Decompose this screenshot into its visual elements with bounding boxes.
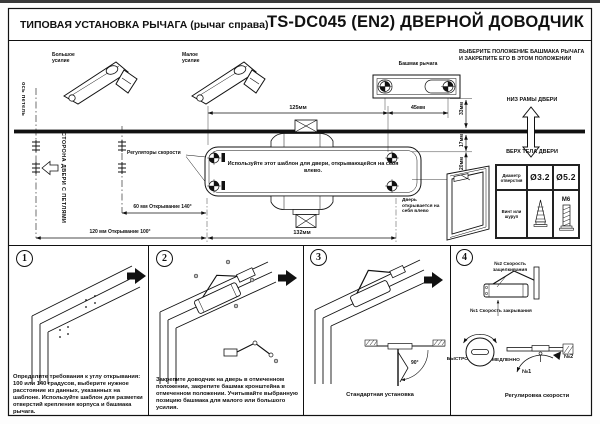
fast-label: БЫСТРО	[446, 357, 468, 362]
template-note: Используйте этот шаблон для двери, откры…	[226, 161, 400, 174]
frame-bottom-label: НИЗ РАМЫ ДВЕРИ	[478, 97, 586, 103]
speed-regulators-label: Регуляторы скорости	[127, 151, 187, 157]
door-opening-note: Дверь открывается на себя влево	[402, 198, 446, 215]
step-1-number: 1	[16, 250, 33, 267]
screw-type-header: Винт или шуруп	[496, 190, 527, 238]
hole-diameter-small: Ø3.2	[527, 165, 553, 190]
valve-2-label: №2	[564, 354, 573, 360]
sheet-title: TS-DC045 (EN2) ДВЕРНОЙ ДОВОДЧИК	[267, 13, 584, 32]
dim-125mm: 125мм	[283, 105, 313, 111]
step-2-number: 2	[156, 250, 173, 267]
step-3-caption: Стандартная установка	[325, 392, 435, 399]
closing-speed-label: №1 Скорость закрывания	[470, 309, 554, 314]
hole-diameter-large: Ø5.2	[553, 165, 579, 190]
dim-17mm: 17мм	[459, 134, 465, 147]
valve-1-label: №1	[522, 369, 531, 375]
fastener-table: Диаметр отверстия Ø3.2 Ø5.2 Винт или шур…	[495, 164, 580, 239]
shoe-position-instruction: ВЫБЕРИТЕ ПОЛОЖЕНИЕ БАШМАКА РЫЧАГА И ЗАКР…	[459, 49, 587, 62]
step-4-caption: Регулировка скорости	[492, 393, 582, 400]
hole-diameter-header: Диаметр отверстия	[496, 165, 527, 190]
hinge-side-label: СТОРОНА ДВЕРИ С ПЕТЛЯМИ	[60, 132, 66, 240]
machine-screw-icon	[559, 203, 574, 232]
plan-view-angle: 90°	[411, 360, 419, 366]
step-2-caption: Закрепите доводчик на дверь в отмеченном…	[156, 377, 299, 412]
step-4-number: 4	[456, 249, 473, 266]
dim-20mm: 20мм	[459, 157, 465, 170]
sheet-subtitle: ТИПОВАЯ УСТАНОВКА РЫЧАГА (рычаг справа)	[20, 19, 268, 31]
latch-speed-label: №2 Скорость защелкивания	[478, 262, 542, 273]
dim-33mm: 33мм	[459, 102, 465, 115]
step-1-caption: Определите требования к углу открывания:…	[13, 374, 145, 415]
step-3-number: 3	[310, 249, 327, 266]
arm-large-force-label: Большое усилие	[52, 52, 90, 64]
slow-label: МЕДЛЕННО	[492, 358, 522, 363]
dim-120mm-opening: 120 мм Открывание 100°	[65, 229, 175, 235]
tapping-screw-icon	[533, 199, 548, 229]
arm-small-force-label: Малое усилие	[182, 52, 212, 64]
dim-132mm: 132мм	[285, 230, 319, 236]
tapping-screw-cell	[527, 190, 553, 238]
dim-60mm-opening: 60 мм Открывание 140°	[115, 204, 210, 210]
machine-screw-cell: М6	[553, 190, 579, 238]
dim-45mm: 45мм	[404, 105, 432, 111]
arm-shoe-label: Башмак рычага	[388, 61, 448, 67]
hinge-axis-label: ось петель	[20, 82, 26, 130]
door-top-label: ВЕРХ ТЕЛА ДВЕРИ	[478, 149, 586, 155]
installation-sheet: ТИПОВАЯ УСТАНОВКА РЫЧАГА (рычаг справа) …	[0, 0, 600, 424]
